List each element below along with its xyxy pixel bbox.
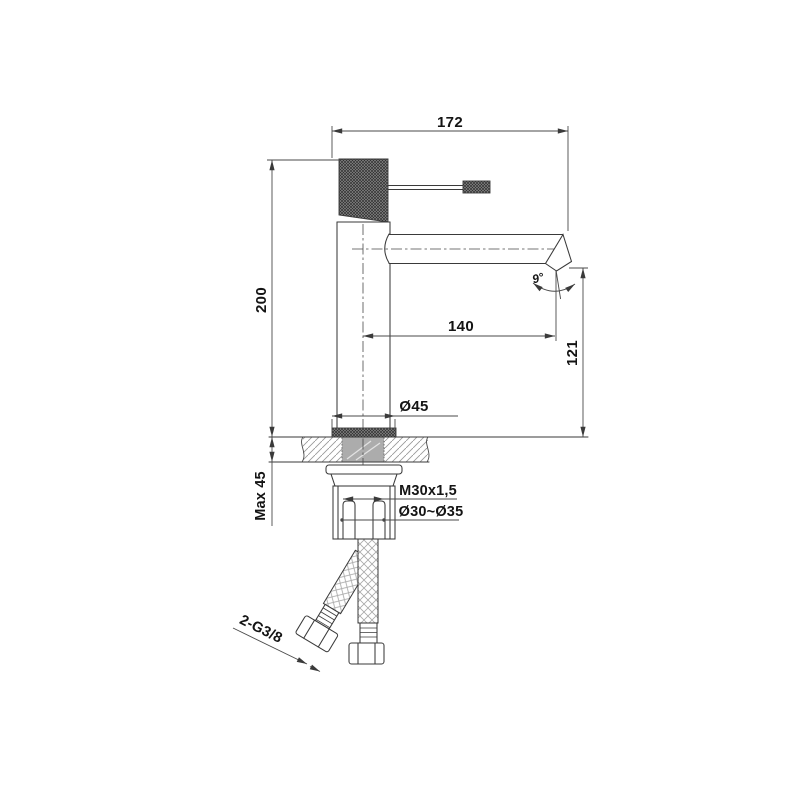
dim-121-label: 121 (564, 340, 581, 366)
hose-vertical-collar (360, 623, 377, 643)
dimension-base-diameter: Ø45 (332, 398, 458, 430)
hose-vertical-hex-nut (349, 643, 384, 664)
spout-nozzle-beak (546, 235, 572, 272)
thread-spec-label: M30x1,5 (399, 483, 457, 499)
dim-d45-label: Ø45 (399, 398, 428, 415)
knurled-handle (339, 159, 388, 222)
dim-max45-label: Max 45 (253, 471, 269, 521)
countertop-section (269, 437, 588, 462)
hose-vertical-braid (358, 539, 378, 623)
dim-dot (340, 518, 343, 521)
dimension-total-height: 200 (253, 160, 341, 437)
supply-hoses (295, 539, 384, 664)
counter-hatch-left (303, 438, 342, 463)
lever-knurled-tip (463, 181, 490, 193)
mounting-cone (331, 474, 397, 486)
angle-9-label: 9° (531, 270, 546, 287)
faucet-technical-drawing: 172 200 140 121 Ø45 Max 45 M30x1,5 (0, 0, 800, 800)
mounting-hardware (326, 465, 402, 539)
annotation-spout-angle: 9° (531, 270, 575, 299)
base-flange-knurled (332, 428, 396, 437)
spout-fillet (385, 234, 389, 263)
technical-drawing-canvas: 172 200 140 121 Ø45 Max 45 M30x1,5 (0, 0, 800, 800)
hole-range-label: Ø30~Ø35 (399, 504, 464, 520)
dimension-outlet-height: 121 (564, 268, 588, 437)
dim-140-label: 140 (448, 318, 474, 335)
counter-hatch-right (384, 438, 428, 463)
dimension-max-thickness: Max 45 (253, 433, 272, 526)
angle-reference-line (556, 270, 561, 299)
dim-172-label: 172 (437, 114, 463, 131)
mounting-washer (326, 465, 402, 474)
dimension-spout-reach: 140 (363, 270, 556, 341)
leader-line-2 (310, 667, 320, 672)
dim-200-label: 200 (253, 287, 270, 313)
mounting-nut-body (333, 486, 395, 539)
